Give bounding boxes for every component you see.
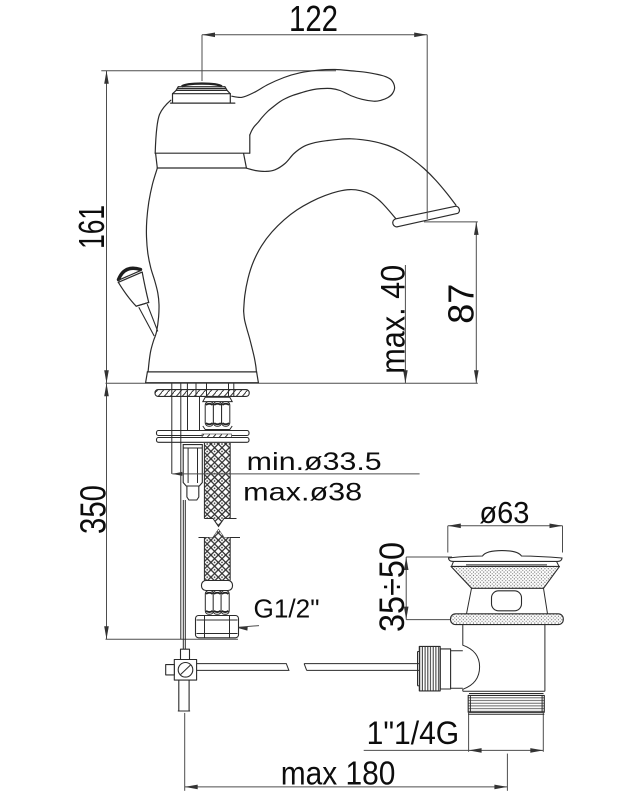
svg-text:G1/2": G1/2" [254, 593, 320, 623]
svg-text:max.ø38: max.ø38 [243, 478, 362, 506]
svg-text:ø63: ø63 [479, 495, 529, 530]
svg-text:1"1/4G: 1"1/4G [367, 715, 460, 751]
svg-text:35÷50: 35÷50 [373, 542, 412, 632]
svg-text:122: 122 [289, 0, 338, 39]
svg-text:161: 161 [71, 205, 112, 249]
svg-text:87: 87 [440, 284, 481, 324]
svg-text:350: 350 [73, 485, 114, 534]
svg-text:min.ø33.5: min.ø33.5 [247, 448, 382, 476]
svg-text:max. 40: max. 40 [374, 265, 412, 374]
svg-text:max 180: max 180 [281, 754, 396, 791]
